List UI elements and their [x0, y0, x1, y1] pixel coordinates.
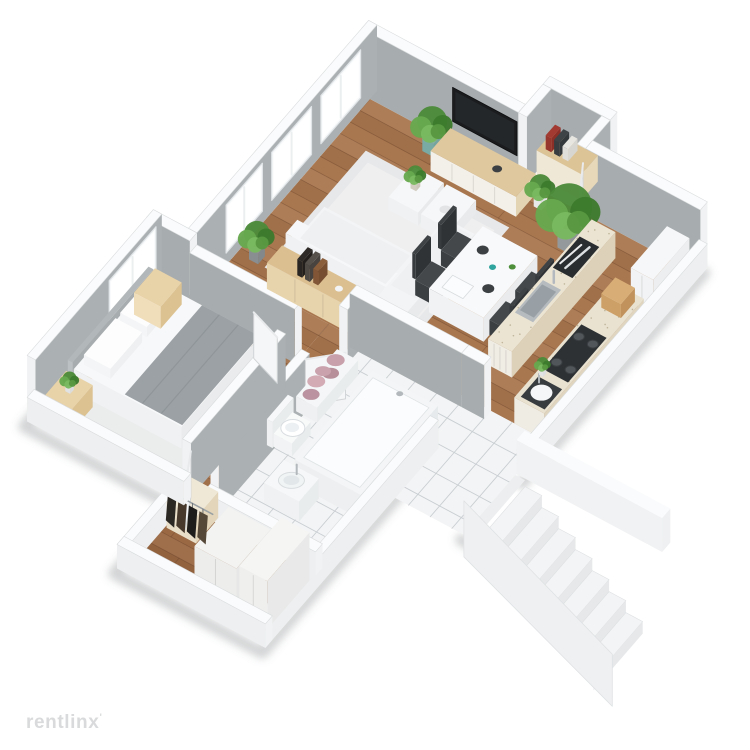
towel-roll-4	[303, 389, 320, 400]
floorplan-screenshot: rentlinx'	[0, 0, 750, 750]
toilet-bowl-inner	[285, 423, 299, 433]
watermark-tick: '	[99, 713, 102, 724]
towel-roll-5	[315, 366, 331, 376]
table-greens	[509, 264, 516, 269]
vanity-basin-inner	[283, 475, 299, 485]
table-cup-teal	[489, 264, 496, 270]
console-decor	[492, 165, 502, 172]
burner-1	[573, 333, 584, 341]
burner-2	[587, 340, 598, 348]
burner-3	[551, 358, 562, 366]
sideboard-vase	[335, 286, 343, 292]
watermark-text: rentlinx	[26, 712, 99, 733]
burner-4	[565, 366, 576, 374]
bathtub-faucet	[396, 391, 403, 396]
kitchen-sink-2-basin	[530, 385, 552, 401]
watermark: rentlinx'	[26, 712, 102, 734]
table-plate-2	[482, 284, 494, 293]
floorplan-3d-render	[0, 0, 750, 750]
towel-roll-3	[307, 375, 325, 387]
table-plate-1	[477, 246, 489, 255]
towel-roll-1	[327, 354, 345, 366]
kitchen-south-wall	[462, 345, 491, 419]
